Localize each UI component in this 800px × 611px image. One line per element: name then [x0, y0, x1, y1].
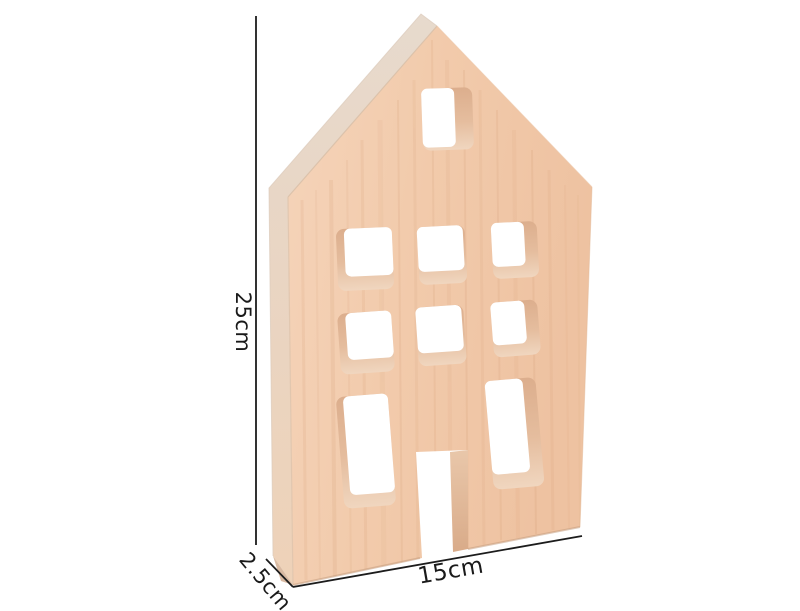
window-cutout-row1-right — [491, 221, 540, 279]
window-opening — [491, 222, 526, 268]
window-opening — [343, 393, 396, 495]
window-cutout-row2-center — [415, 304, 467, 366]
window-cutout-row1-left — [336, 227, 395, 291]
wooden-house-plaque — [269, 14, 592, 585]
window-opening — [417, 225, 465, 272]
product-photo: 25cm 15cm 2.5cm — [0, 0, 800, 611]
window-opening — [415, 305, 464, 354]
height-label: 25cm — [231, 292, 255, 353]
window-cutout-row2-left — [337, 310, 395, 375]
window-cutout-row2-right — [490, 299, 541, 358]
tall-window-cutout-right — [484, 377, 544, 490]
window-opening — [344, 227, 394, 277]
window-opening — [345, 310, 394, 360]
door-inner-edge — [450, 450, 468, 552]
gable-window-cutout — [421, 87, 474, 151]
window-opening — [490, 300, 527, 346]
window-opening — [421, 88, 456, 148]
window-cutout-row1-center — [417, 225, 468, 285]
width-label: 15cm — [416, 553, 486, 590]
tall-window-cutout-left — [336, 393, 397, 509]
product-image-canvas: 25cm 15cm 2.5cm — [0, 0, 800, 611]
